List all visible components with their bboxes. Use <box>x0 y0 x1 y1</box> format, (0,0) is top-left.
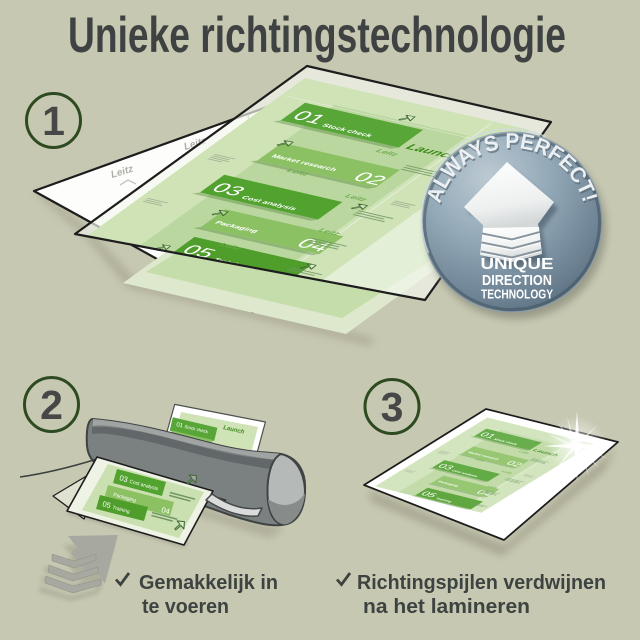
svg-text:Unieke richtingstechnologie: Unieke richtingstechnologie <box>68 7 566 63</box>
svg-text:3: 3 <box>381 384 404 430</box>
svg-text:te voeren: te voeren <box>142 595 229 618</box>
svg-text:1: 1 <box>42 98 65 144</box>
svg-text:Richtingspijlen verdwijnen: Richtingspijlen verdwijnen <box>357 571 606 594</box>
svg-text:Gemakkelijk in: Gemakkelijk in <box>139 571 278 594</box>
svg-text:2: 2 <box>40 382 63 428</box>
svg-text:na het lamineren: na het lamineren <box>363 595 530 618</box>
svg-text:UNIQUE: UNIQUE <box>481 256 554 273</box>
svg-text:TECHNOLOGY: TECHNOLOGY <box>481 288 554 302</box>
